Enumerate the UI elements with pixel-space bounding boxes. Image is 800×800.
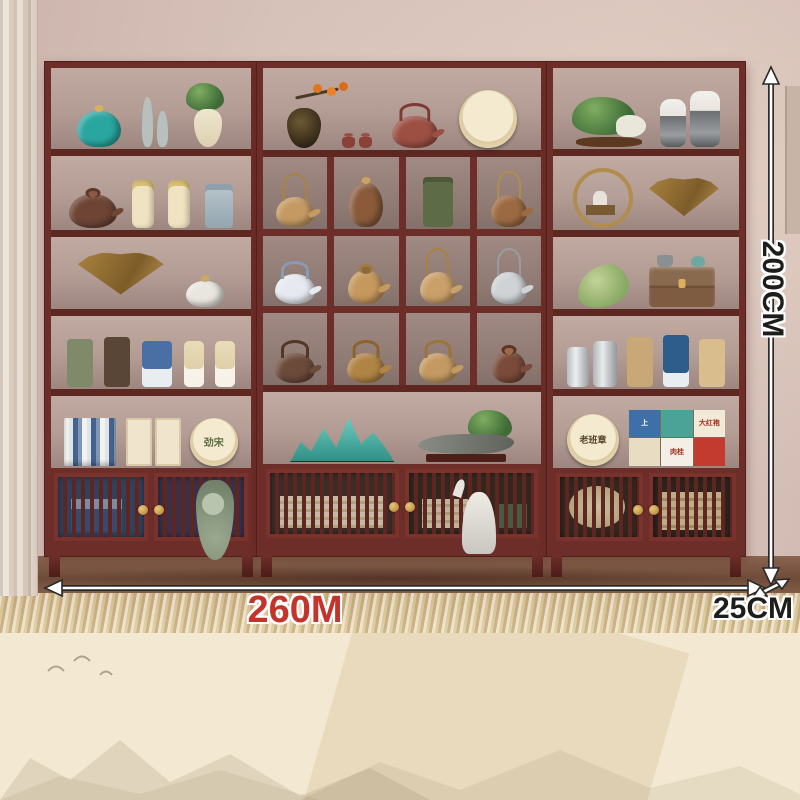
blue-tea-box bbox=[663, 335, 689, 387]
right-cabinet-door bbox=[649, 473, 736, 541]
unit-legs bbox=[45, 556, 257, 577]
info-panel: {胡桃·常规款} 80边柜+100十二宫格+80边柜 长260cm*宽25cm*… bbox=[0, 633, 800, 800]
incense-ring-deer-ornament bbox=[573, 168, 633, 228]
square-canister bbox=[205, 184, 233, 228]
blue-tea-box bbox=[142, 341, 172, 387]
grid-cell bbox=[334, 236, 398, 306]
arch-handle-teapot bbox=[276, 197, 314, 227]
display-shelf-cabinet: 劲宋 bbox=[45, 62, 745, 577]
leather-gift-boxes bbox=[649, 267, 715, 307]
grid-cell bbox=[477, 157, 541, 229]
middle-top-shelf bbox=[263, 68, 541, 157]
cabbage-sculpture bbox=[572, 97, 646, 147]
pear-teapot bbox=[348, 270, 384, 304]
grid-cell bbox=[406, 157, 470, 229]
right-shelf-1 bbox=[553, 68, 739, 156]
left-shelf-3 bbox=[51, 237, 251, 316]
clay-teapot bbox=[69, 194, 117, 228]
middle-cabinet-door bbox=[266, 469, 399, 538]
gourd-teapot bbox=[420, 272, 456, 304]
left-shelf-5: 劲宋 bbox=[51, 396, 251, 468]
grid-cell bbox=[406, 313, 470, 385]
gold-fan-leaf-ornament bbox=[649, 178, 719, 216]
left-shelf-4 bbox=[51, 316, 251, 397]
brown-tea-box bbox=[104, 337, 130, 387]
height-dimension-label: 200CM bbox=[755, 209, 789, 369]
abstract-figurines bbox=[142, 97, 168, 147]
width-dimension-label: 260M bbox=[210, 589, 380, 632]
right-cabinet-door bbox=[556, 473, 643, 541]
large-tea-cake bbox=[459, 90, 517, 148]
left-shelf-1 bbox=[51, 68, 251, 156]
book-stack bbox=[64, 418, 116, 466]
golden-teapot bbox=[347, 353, 385, 383]
tea-canister bbox=[168, 180, 190, 228]
tea-canister bbox=[132, 180, 154, 228]
glazed-vases bbox=[660, 91, 720, 147]
green-dragon-sculpture bbox=[574, 261, 631, 310]
tea-box-assortment: 上 大红袍 肉桂 bbox=[629, 410, 725, 466]
persimmon-branch-vase bbox=[287, 108, 321, 148]
kraft-tea-box bbox=[699, 339, 725, 387]
watercolor-wash bbox=[301, 633, 690, 800]
gold-leaf-ornament bbox=[78, 253, 164, 295]
red-clay-cups bbox=[342, 137, 372, 148]
right-bottom-cabinet bbox=[553, 468, 739, 550]
framed-boxes bbox=[126, 418, 181, 466]
birds-sketch bbox=[40, 651, 130, 681]
left-cabinet-door bbox=[54, 473, 148, 541]
bonsai-in-vase bbox=[190, 87, 226, 147]
green-tea-box bbox=[67, 339, 93, 387]
grid-cell bbox=[477, 313, 541, 385]
red-clay-teapot bbox=[392, 116, 438, 148]
product-listing-image: 劲宋 bbox=[0, 0, 800, 800]
silver-teapot bbox=[491, 272, 527, 304]
right-shelf-5: 老班章 上 大红袍 肉桂 bbox=[553, 396, 739, 468]
left-shelf-2 bbox=[51, 156, 251, 237]
middle-bottom-cabinet bbox=[263, 464, 541, 547]
paper-wrapped-canister bbox=[215, 341, 235, 387]
tea-cake-display: 劲宋 bbox=[190, 418, 238, 466]
grid-cell bbox=[477, 236, 541, 306]
porcelain-teapot bbox=[275, 274, 315, 304]
grid-cell bbox=[263, 157, 327, 229]
middle-grid-cabinet bbox=[257, 62, 547, 577]
unit-legs bbox=[547, 556, 745, 577]
product-photo: 劲宋 bbox=[0, 0, 800, 633]
right-shelf-2 bbox=[553, 156, 739, 237]
white-lidded-jar bbox=[186, 281, 224, 307]
green-tea-caddy bbox=[423, 177, 453, 227]
grid-cell bbox=[406, 236, 470, 306]
paper-wrapped-canister bbox=[184, 341, 204, 387]
dark-clay-teapot bbox=[275, 353, 315, 383]
twelve-grid-compartments bbox=[263, 157, 541, 392]
driftwood-bonsai bbox=[418, 426, 514, 462]
right-shelf-3 bbox=[553, 237, 739, 316]
teal-tea-jar bbox=[77, 111, 121, 147]
brown-tea-jar bbox=[349, 183, 383, 227]
right-shelf-4 bbox=[553, 316, 739, 397]
grid-cell bbox=[263, 236, 327, 306]
tan-teapot bbox=[419, 353, 457, 383]
right-side-cabinet: 老班章 上 大红袍 肉桂 bbox=[547, 62, 745, 577]
turquoise-mountain-rockery bbox=[290, 414, 394, 462]
silver-canisters bbox=[567, 341, 617, 387]
unit-legs bbox=[257, 556, 547, 577]
window-curtain bbox=[0, 0, 38, 596]
middle-display-shelf bbox=[263, 392, 541, 464]
grid-cell bbox=[334, 313, 398, 385]
depth-dimension-label: 25CM bbox=[706, 592, 800, 626]
dark-pot-on-stand bbox=[492, 351, 526, 383]
grid-cell bbox=[334, 157, 398, 229]
tatami-mat bbox=[0, 593, 800, 633]
grid-cell bbox=[263, 313, 327, 385]
kraft-tea-box bbox=[627, 337, 653, 387]
tea-cake-stack: 老班章 bbox=[567, 414, 619, 466]
arch-handle-pot bbox=[491, 195, 527, 227]
